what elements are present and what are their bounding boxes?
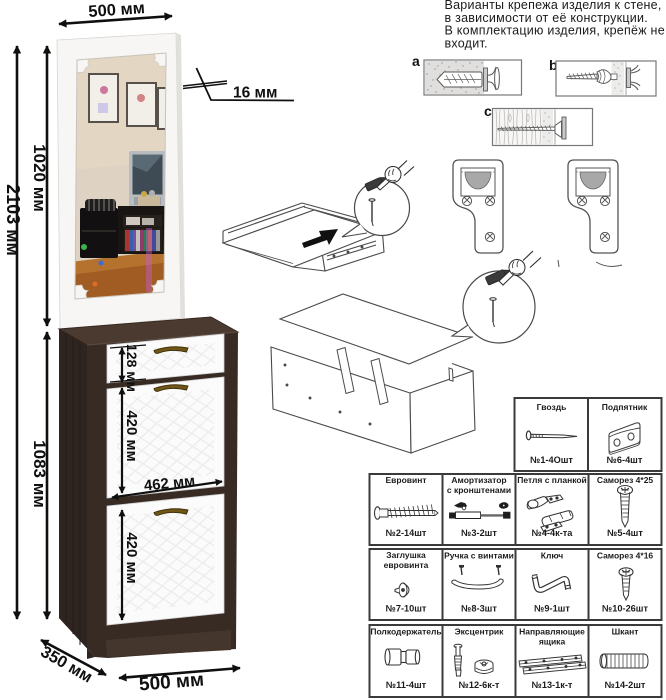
svg-text:Саморез 4*25: Саморез 4*25: [597, 475, 654, 485]
svg-text:входит.: входит.: [445, 36, 488, 50]
svg-text:420 мм: 420 мм: [123, 410, 140, 461]
svg-text:№12-6к-т: №12-6к-т: [459, 680, 500, 690]
svg-text:Петля с планкой: Петля с планкой: [517, 475, 587, 485]
svg-text:Гвоздь: Гвоздь: [537, 402, 567, 412]
svg-text:Ручка с винтами: Ручка с винтами: [444, 551, 514, 561]
svg-text:420 мм: 420 мм: [123, 532, 140, 583]
svg-text:№3-2шт: №3-2шт: [461, 528, 497, 538]
svg-text:Подпятник: Подпятник: [602, 402, 648, 412]
svg-text:Амортизатор: Амортизатор: [451, 475, 506, 485]
svg-text:№10-26шт: №10-26шт: [602, 604, 648, 614]
svg-text:128 мм: 128 мм: [124, 344, 140, 392]
svg-text:№8-3шт: №8-3шт: [461, 604, 497, 614]
svg-text:1083 мм: 1083 мм: [30, 440, 49, 508]
svg-text:№5-4шт: №5-4шт: [607, 528, 643, 538]
svg-text:Евровинт: Евровинт: [385, 475, 426, 485]
svg-text:Шкант: Шкант: [612, 627, 639, 637]
svg-text:Направляющие: Направляющие: [519, 627, 585, 637]
svg-text:c: c: [484, 103, 492, 119]
svg-text:16 мм: 16 мм: [233, 85, 277, 102]
svg-text:№11-4шт: №11-4шт: [386, 680, 427, 690]
svg-text:Ключ: Ключ: [541, 551, 564, 561]
svg-text:1020 мм: 1020 мм: [30, 144, 49, 212]
svg-text:№2-14шт: №2-14шт: [386, 528, 427, 538]
svg-text:Эксцентрик: Эксцентрик: [455, 627, 505, 637]
svg-text:№14-2шт: №14-2шт: [605, 680, 646, 690]
svg-text:500 мм: 500 мм: [138, 669, 205, 695]
svg-text:Заглушка: Заглушка: [386, 550, 426, 560]
svg-text:№4-4к-та: №4-4к-та: [532, 528, 574, 538]
svg-text:a: a: [412, 53, 420, 69]
svg-text:№1-4Ошт: №1-4Ошт: [530, 455, 573, 465]
svg-text:№6-4шт: №6-4шт: [607, 455, 643, 465]
svg-text:№9-1шт: №9-1шт: [534, 604, 570, 614]
svg-text:№7-10шт: №7-10шт: [386, 604, 427, 614]
svg-text:ящика: ящика: [539, 637, 566, 647]
svg-text:2103 мм: 2103 мм: [3, 184, 23, 256]
svg-text:Саморез 4*16: Саморез 4*16: [597, 551, 654, 561]
svg-text:евровинта: евровинта: [384, 560, 429, 570]
svg-text:с кронштенами: с кронштенами: [447, 485, 511, 495]
svg-text:Полкодержатель: Полкодержатель: [370, 627, 441, 637]
svg-text:№13-1к-т: №13-1к-т: [532, 680, 573, 690]
